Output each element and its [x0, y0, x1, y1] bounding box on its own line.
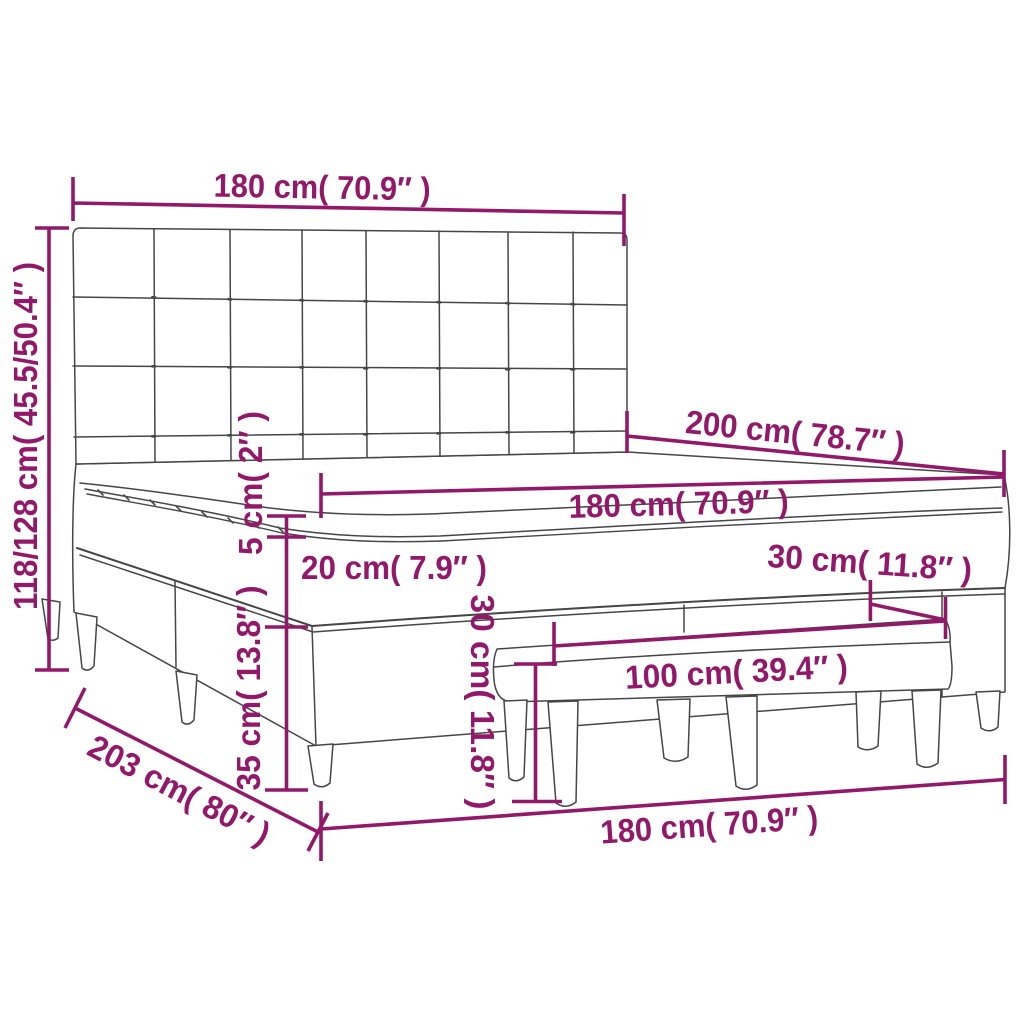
svg-text:5 cm( 2″ ): 5 cm( 2″ ) — [232, 411, 269, 555]
svg-text:35 cm( 13.8″ ): 35 cm( 13.8″ ) — [230, 586, 267, 791]
svg-text:180 cm( 70.9″ ): 180 cm( 70.9″ ) — [568, 482, 789, 525]
svg-text:20 cm( 7.9″ ): 20 cm( 7.9″ ) — [301, 549, 487, 586]
svg-text:118/128 cm( 45.5/50.4″ ): 118/128 cm( 45.5/50.4″ ) — [7, 262, 44, 610]
svg-text:180 cm( 70.9″ ): 180 cm( 70.9″ ) — [213, 167, 431, 208]
svg-text:30 cm( 11.8″ ): 30 cm( 11.8″ ) — [464, 595, 501, 810]
